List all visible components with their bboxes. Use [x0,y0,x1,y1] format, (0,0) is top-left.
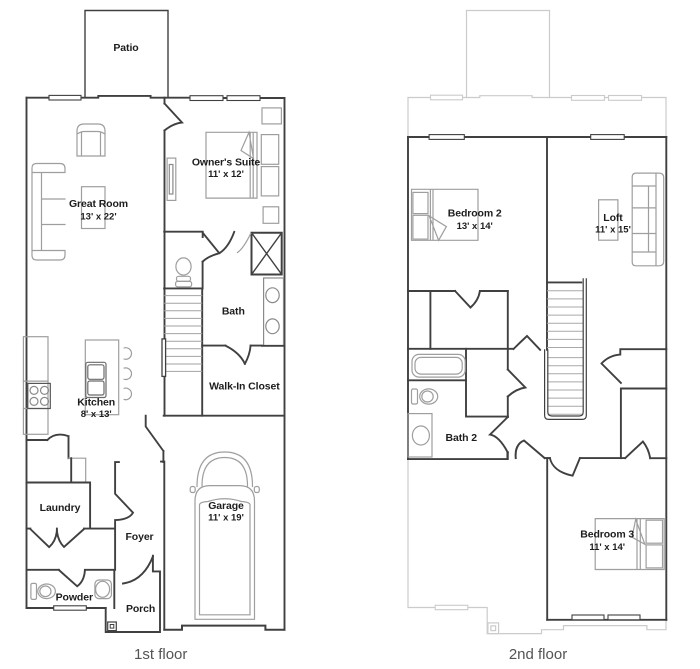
svg-text:Laundry: Laundry [40,502,81,514]
svg-text:13' x 22': 13' x 22' [80,212,116,223]
svg-text:Powder: Powder [56,591,93,603]
svg-text:Bedroom 3: Bedroom 3 [580,528,634,540]
svg-text:2nd floor: 2nd floor [509,646,567,663]
svg-text:Patio: Patio [113,42,138,54]
svg-text:13' x 14': 13' x 14' [457,221,493,232]
svg-text:Bath: Bath [222,306,245,318]
svg-text:8' x 13': 8' x 13' [81,409,112,420]
svg-text:Owner's Suite: Owner's Suite [192,157,261,169]
svg-text:Kitchen: Kitchen [77,397,115,409]
svg-text:11' x 15': 11' x 15' [595,224,631,235]
svg-text:Porch: Porch [126,603,155,615]
svg-text:Loft: Loft [603,212,623,224]
svg-text:Bedroom 2: Bedroom 2 [448,208,502,220]
svg-text:Great Room: Great Room [69,198,128,210]
svg-text:Walk-In Closet: Walk-In Closet [209,381,280,393]
svg-text:11' x 12': 11' x 12' [208,169,244,180]
svg-text:Bath 2: Bath 2 [446,432,478,444]
svg-text:11' x 19': 11' x 19' [208,513,244,524]
svg-text:Garage: Garage [208,500,244,512]
svg-text:11' x 14': 11' x 14' [589,542,625,553]
svg-text:Foyer: Foyer [125,531,153,543]
svg-text:1st floor: 1st floor [134,646,187,663]
